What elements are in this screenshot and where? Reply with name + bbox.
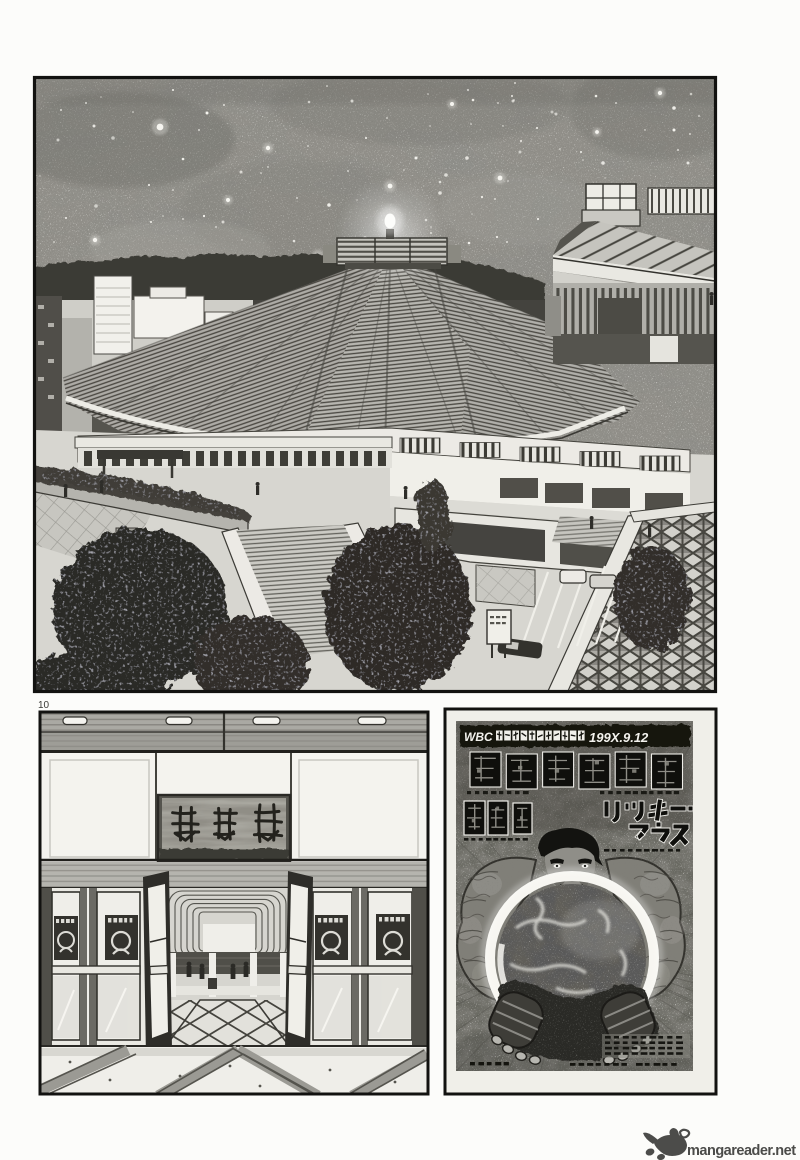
svg-text:WBC: WBC (464, 730, 493, 744)
svg-text:199X.9.12: 199X.9.12 (589, 730, 649, 745)
svg-text:mangareader.net: mangareader.net (687, 1143, 796, 1159)
svg-text:10: 10 (38, 700, 50, 711)
